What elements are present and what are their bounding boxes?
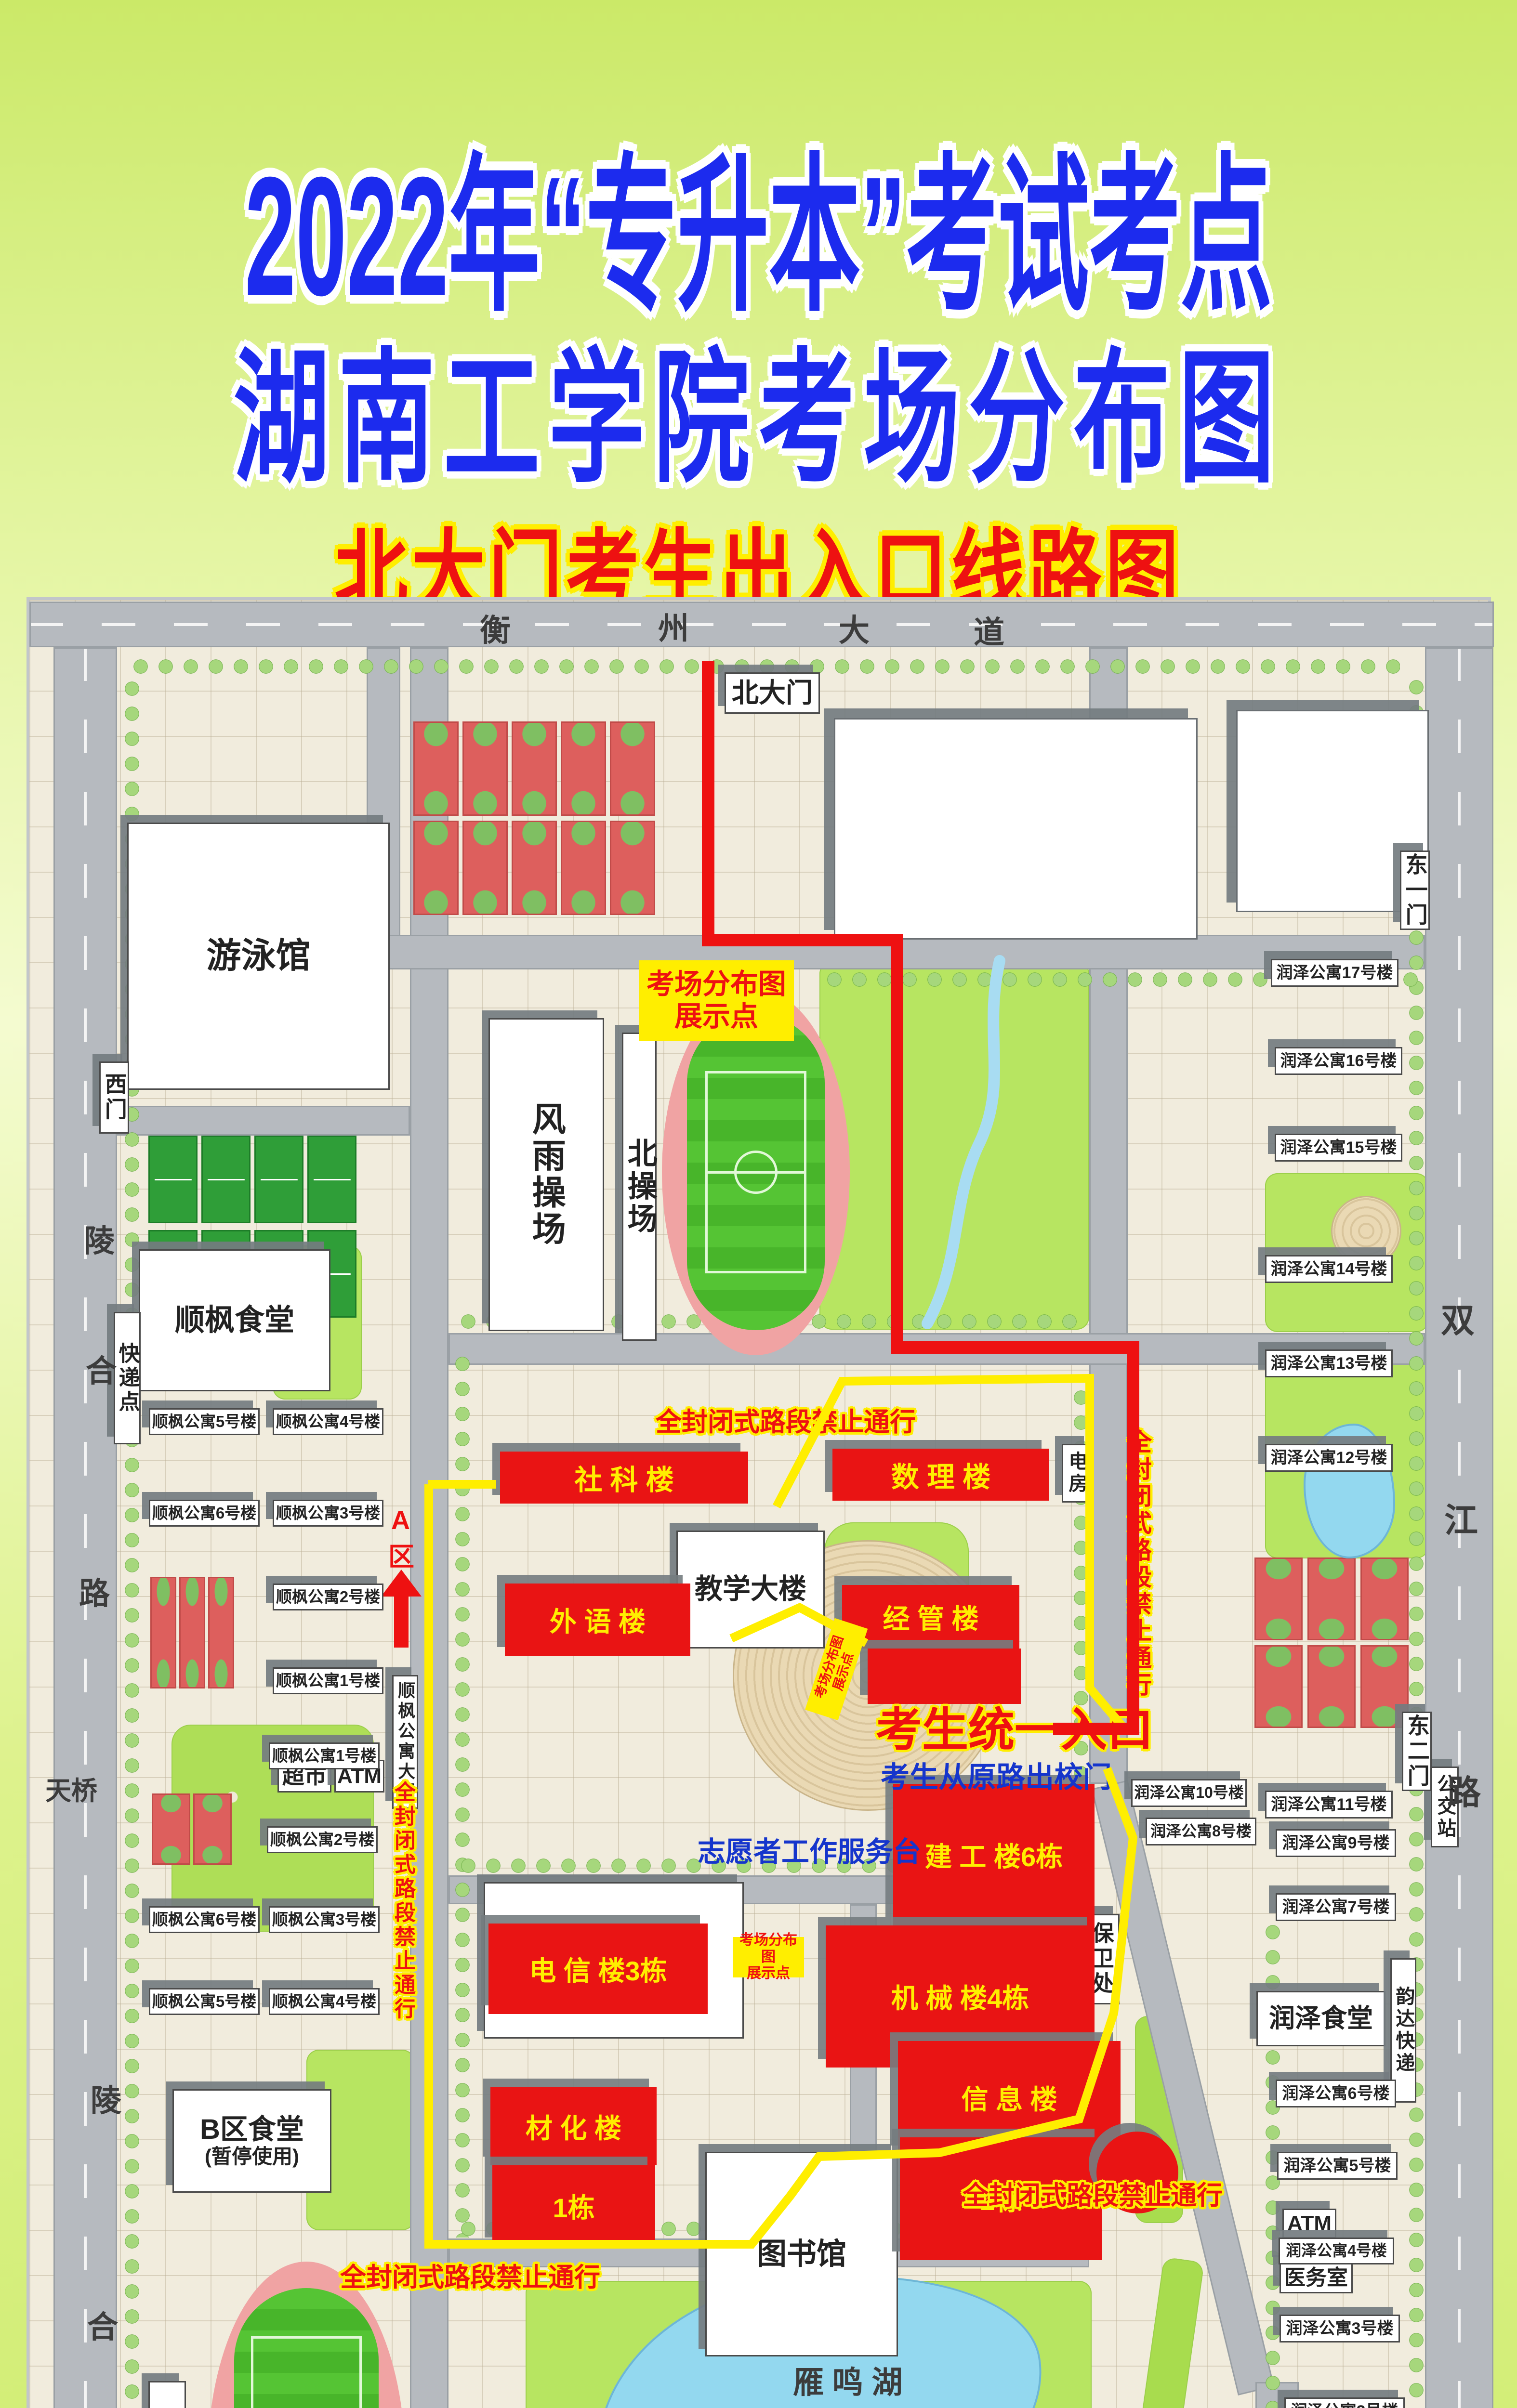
building-label: 电房: [1062, 1444, 1091, 1503]
map-text: 雁 鸣 湖: [793, 2358, 903, 2402]
basketball-court: [413, 721, 459, 816]
building-label: 润泽公寓5号楼: [1277, 2152, 1398, 2180]
building-label: 润泽公寓16号楼: [1275, 1047, 1402, 1075]
map-text: 志愿者工作服务台: [698, 1829, 921, 1870]
building-label: 润泽公寓13号楼: [1265, 1349, 1393, 1377]
tennis-court: [254, 1136, 303, 1223]
map-text: 区: [388, 1535, 414, 1573]
exam-building: 建 工 楼6栋: [893, 1784, 1095, 1926]
building-label: [834, 718, 1198, 940]
basketball-court: [150, 1577, 176, 1688]
stadium-field: [687, 1014, 825, 1330]
map-text: 天桥: [45, 1769, 97, 1807]
building-label: 快递点: [114, 1312, 141, 1444]
exam-site-poster: 2022年“专升本”考试考点 湖南工学院考场分布图 北大门考生出入口线路图 游泳…: [0, 0, 1517, 2408]
map-text: 全封闭式路段禁止通行: [656, 1400, 916, 1439]
basketball-court: [462, 821, 508, 915]
arrow-up-icon: [394, 1595, 409, 1648]
building-label: 东一门: [1400, 851, 1430, 930]
building-label: 教学大楼: [676, 1531, 825, 1649]
map-text: 合: [87, 2303, 118, 2347]
building-label: 顺枫公寓1号楼: [273, 1667, 383, 1694]
building-label: 顺枫公寓2号楼: [273, 1584, 383, 1610]
exam-building: 经 管 楼: [842, 1585, 1019, 1649]
map-text: 衡: [480, 606, 511, 650]
building-label: 顺枫公寓3号楼: [269, 1906, 380, 1933]
stadium-field: [234, 2288, 379, 2408]
map-text: 考生从原路出校门: [881, 1754, 1112, 1796]
map-text: 全封闭式路段禁止通行: [963, 2174, 1223, 2212]
building-label: 润泽食堂: [1256, 1991, 1385, 2046]
lawn: [819, 961, 1089, 1330]
map-text: 双: [1441, 1294, 1475, 1342]
map-text: 江: [1444, 1493, 1478, 1542]
building-label: 顺枫公寓6号楼: [149, 1906, 260, 1933]
map-text: 全封闭式路段禁止通行: [340, 2256, 600, 2294]
road: [367, 935, 1425, 969]
map-text: 合: [86, 1347, 117, 1391]
building-label: 润泽公寓2号楼: [1284, 2397, 1405, 2408]
road: [29, 602, 1494, 647]
building-label: 润泽公寓8号楼: [1146, 1818, 1256, 1845]
building-label: 顺枫公寓2号楼: [267, 1826, 378, 1853]
exam-building: 1栋: [492, 2165, 655, 2246]
building-label: 润泽公寓12号楼: [1265, 1444, 1393, 1472]
building-label: 顺枫公寓3号楼: [273, 1500, 383, 1527]
plaza-circle: [1332, 1197, 1400, 1265]
building-label: 风雨操场: [488, 1018, 604, 1331]
map-text: 路: [79, 1569, 110, 1613]
football-pitch: [251, 2336, 362, 2408]
tree-row: [450, 1351, 475, 2238]
exam-building: 电 信 楼3栋: [488, 1924, 708, 2014]
map-text: A: [391, 1505, 410, 1535]
building-label: 润泽公寓9号楼: [1276, 1829, 1396, 1857]
basketball-court: [462, 721, 508, 816]
basketball-court: [193, 1793, 232, 1865]
map-text: 全封闭式路段禁止通行: [1121, 1429, 1155, 1699]
building-label: 顺枫公寓5号楼: [149, 1408, 260, 1435]
tennis-court: [201, 1136, 251, 1223]
road: [117, 1106, 410, 1136]
basketball-court: [610, 721, 655, 816]
football-pitch: [705, 1071, 806, 1273]
basketball-court: [179, 1577, 205, 1688]
building-label: 东二门: [1402, 1712, 1432, 1791]
building-label: 润泽公寓11号楼: [1265, 1791, 1393, 1819]
building-label: 润泽公寓3号楼: [1280, 2315, 1400, 2343]
map-text: 考生统一入口: [876, 1692, 1153, 1759]
building-label: 图书馆: [705, 2152, 898, 2356]
tennis-court: [307, 1136, 356, 1223]
poster-title-line2: 湖南工学院考场分布图: [0, 301, 1517, 510]
map-text: 大: [839, 606, 870, 650]
road: [53, 647, 117, 2408]
building-label: 润泽公寓10号楼: [1131, 1779, 1247, 1807]
building-label: 顺枫公寓6号楼: [149, 1500, 260, 1527]
basketball-court: [512, 821, 557, 915]
campus-map: 游泳馆风雨操场北操场顺枫食堂快递点B区食堂(暂停使用)南操场教学大楼安工楼(5栋…: [26, 597, 1491, 2408]
map-text: 陵: [84, 1217, 115, 1261]
building-label: 西门: [99, 1061, 129, 1134]
basketball-court: [561, 721, 606, 816]
building-label: 润泽公寓15号楼: [1275, 1134, 1402, 1162]
building-label: 润泽公寓6号楼: [1276, 2080, 1396, 2107]
basketball-court: [413, 821, 459, 915]
building-label: B区食堂(暂停使用): [172, 2089, 331, 2193]
building-label: 顺枫公寓5号楼: [149, 1988, 260, 2015]
stadium-track: [662, 989, 850, 1355]
basketball-court: [1254, 1645, 1303, 1728]
building-label: 润泽公寓17号楼: [1271, 959, 1398, 987]
info-box: 考场分布图展示点: [733, 1937, 804, 1977]
basketball-court: [1360, 1557, 1409, 1640]
basketball-court: [1360, 1645, 1409, 1728]
building-label: 南操场: [148, 2381, 186, 2408]
basketball-court: [561, 821, 606, 915]
exam-building: 材 化 楼: [490, 2087, 657, 2165]
basketball-court: [208, 1577, 234, 1688]
building-label: 润泽公寓14号楼: [1265, 1255, 1393, 1283]
building-label: 润泽公寓7号楼: [1276, 1893, 1396, 1921]
basketball-court: [1307, 1645, 1356, 1728]
basketball-court: [152, 1793, 190, 1865]
building-label: 医务室: [1280, 2263, 1353, 2293]
building-label: 北大门: [725, 672, 820, 714]
building-label: 北操场: [622, 1033, 657, 1341]
basketball-court: [610, 821, 655, 915]
basketball-court: [1254, 1557, 1303, 1640]
tennis-court: [148, 1136, 198, 1223]
building-label: 顺枫公寓4号楼: [273, 1408, 383, 1435]
map-text: 陵: [91, 2076, 121, 2120]
basketball-court: [512, 721, 557, 816]
building-label: 顺枫公寓1号楼: [269, 1742, 380, 1769]
building-label: ATM: [1282, 2209, 1336, 2238]
exam-building: 外 语 楼: [505, 1584, 690, 1656]
map-text: 全封闭式路段禁止通行: [387, 1781, 418, 2022]
building-label: 润泽公寓4号楼: [1279, 2238, 1394, 2264]
building-label: 顺枫公寓4号楼: [269, 1988, 380, 2015]
map-text: 路: [1447, 1766, 1481, 1814]
building-label: 顺枫食堂: [139, 1249, 330, 1391]
map-text: 州: [658, 604, 689, 648]
exam-building: 社 科 楼: [500, 1452, 748, 1504]
map-text: 道: [974, 608, 1004, 652]
lawn: [1138, 2257, 1204, 2408]
exam-building: 数 理 楼: [832, 1449, 1049, 1501]
building-label: 游泳馆: [127, 823, 390, 1090]
basketball-court: [1307, 1557, 1356, 1640]
info-box: 考场分布图展示点: [639, 960, 794, 1041]
